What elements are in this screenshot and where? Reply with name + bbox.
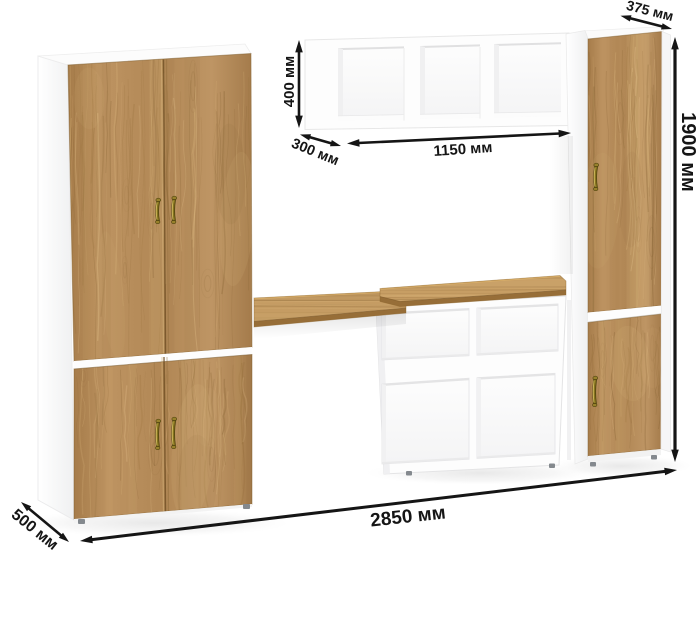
svg-text:400 мм: 400 мм bbox=[281, 56, 298, 107]
svg-text:1900 мм: 1900 мм bbox=[677, 112, 699, 192]
